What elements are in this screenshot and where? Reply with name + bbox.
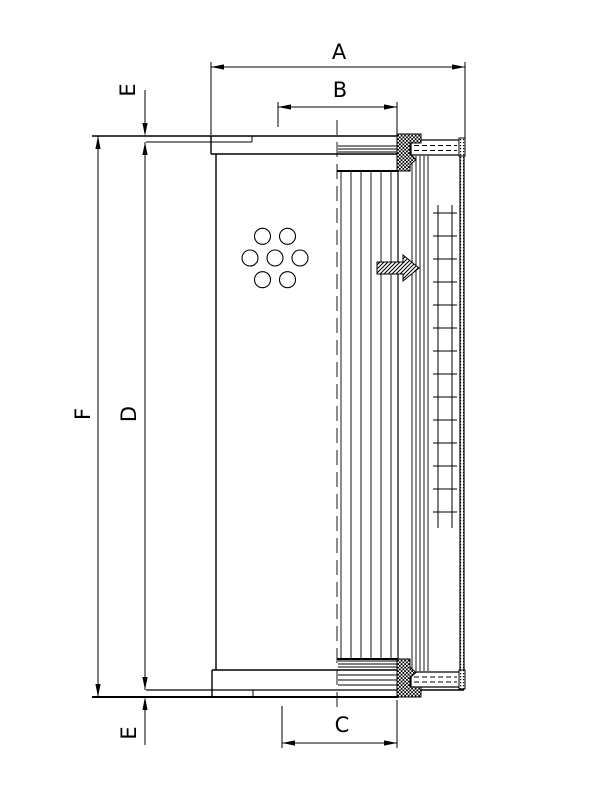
dim-label-d: D <box>117 406 141 422</box>
dim-label-b: B <box>333 78 347 102</box>
perforation-holes <box>242 228 308 287</box>
dim-label-e-bottom: E <box>117 726 141 739</box>
drawing-page: A B C F D E E <box>0 0 612 792</box>
dim-label-e-top: E <box>116 83 140 96</box>
dimension-d <box>142 142 147 690</box>
dimension-f <box>95 136 100 697</box>
top-seal-gasket <box>397 134 421 171</box>
outer-tube-wall <box>459 138 465 689</box>
support-tube-layers <box>412 156 428 671</box>
dim-label-f: F <box>71 408 95 420</box>
wire-mesh-symbol <box>433 205 457 528</box>
top-end-cap <box>92 136 398 171</box>
dim-label-c: C <box>335 713 350 737</box>
dimension-e-bottom <box>142 697 147 745</box>
dim-label-a: A <box>332 40 347 64</box>
bottom-seal-gasket <box>397 659 421 697</box>
bottom-end-cap <box>92 659 398 697</box>
filter-element-drawing: A B C F D E E <box>0 0 612 792</box>
dimension-b <box>278 102 397 149</box>
dimension-e-top <box>142 90 147 136</box>
pleated-filter-media <box>341 171 398 659</box>
